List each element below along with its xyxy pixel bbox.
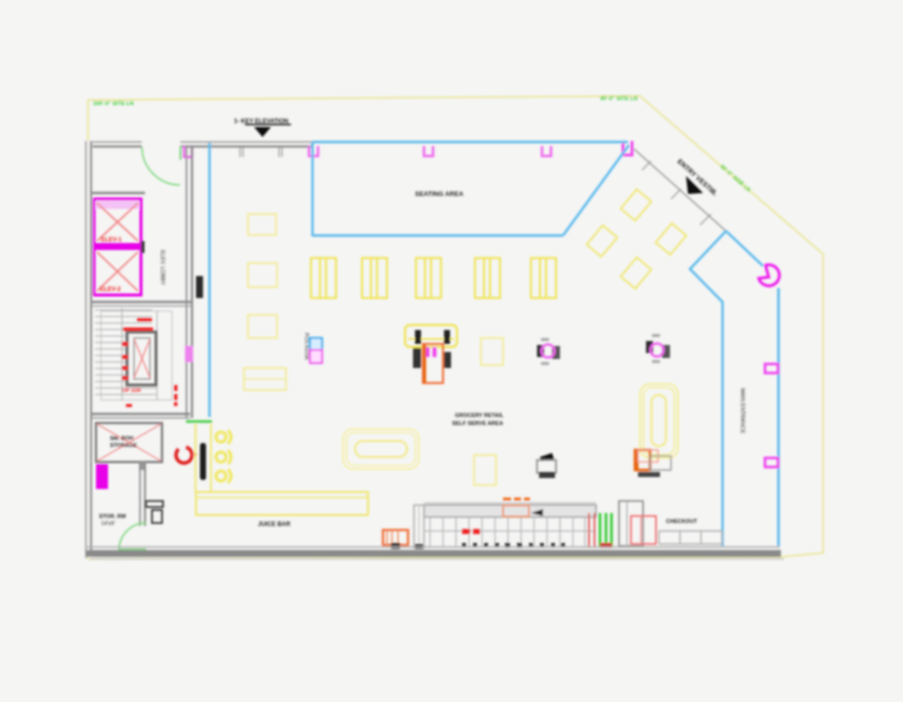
svg-text:SELF SERVE AREA: SELF SERVE AREA: [452, 421, 503, 427]
svg-text:ELEV-1: ELEV-1: [101, 238, 122, 244]
svg-text:GROCERY RETAIL: GROCERY RETAIL: [455, 413, 504, 419]
svg-text:100'-0" SITE LN: 100'-0" SITE LN: [93, 101, 134, 107]
svg-text:SM. BOH: SM. BOH: [110, 436, 134, 442]
svg-text:UP 22R: UP 22R: [122, 388, 141, 394]
svg-text:JUICE BAR: JUICE BAR: [258, 522, 291, 528]
svg-text:ELEV-2: ELEV-2: [100, 287, 121, 293]
svg-text:POS KIOSK: POS KIOSK: [303, 333, 309, 361]
svg-text:ELEV. LOBBY: ELEV. LOBBY: [159, 250, 165, 285]
svg-text:STOR. RM: STOR. RM: [99, 514, 126, 520]
svg-text:14'x9': 14'x9': [101, 521, 115, 527]
svg-text:40'-0" SITE LN: 40'-0" SITE LN: [600, 96, 638, 102]
svg-text:SEATING AREA: SEATING AREA: [415, 191, 464, 198]
svg-text:CHECKOUT: CHECKOUT: [666, 519, 698, 525]
svg-text:MAIN ENTRANCE: MAIN ENTRANCE: [739, 388, 745, 434]
svg-text:STORAGE: STORAGE: [110, 443, 137, 449]
